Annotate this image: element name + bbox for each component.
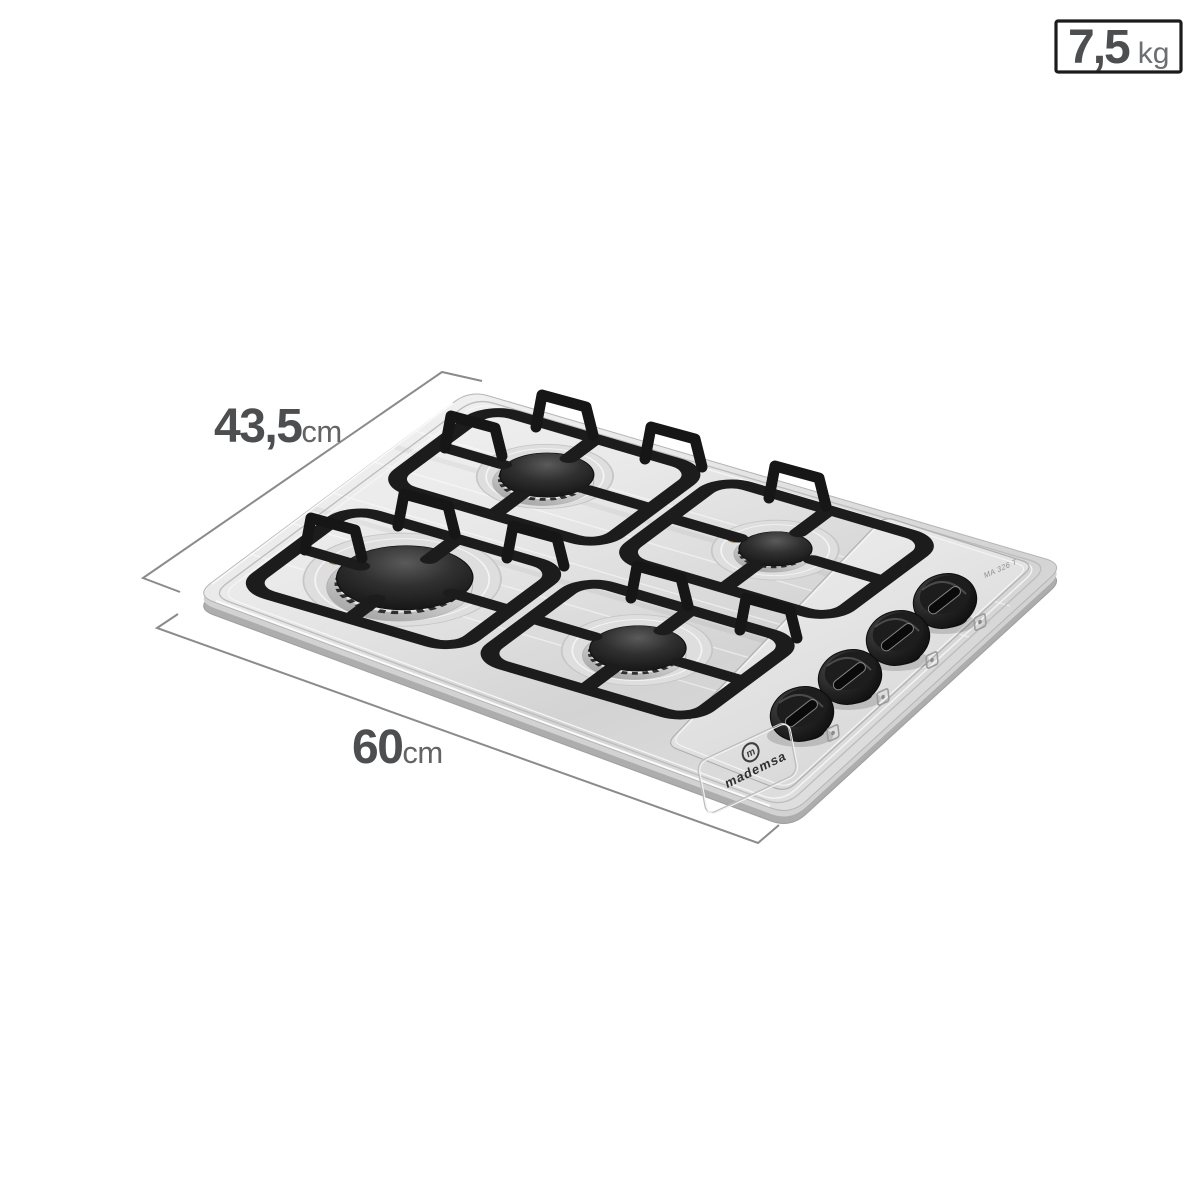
width-unit: cm bbox=[402, 735, 442, 770]
depth-value: 43,5 bbox=[214, 400, 302, 453]
product-figure: 7,5kg 43,5cm 60cm bbox=[0, 0, 1200, 1200]
weight-unit: kg bbox=[1138, 37, 1170, 70]
cooktop-diagram: 7,5kg 43,5cm 60cm bbox=[0, 0, 1200, 1200]
width-value: 60 bbox=[352, 721, 402, 774]
depth-unit: cm bbox=[301, 414, 341, 449]
cooktop-illustration: MA 326 T m mademsa bbox=[204, 394, 1057, 823]
depth-dimension-label: 43,5cm bbox=[214, 400, 342, 453]
width-dimension-label: 60cm bbox=[352, 721, 443, 774]
weight-value: 7,5 bbox=[1068, 21, 1130, 74]
weight-badge: 7,5kg bbox=[1056, 21, 1181, 74]
